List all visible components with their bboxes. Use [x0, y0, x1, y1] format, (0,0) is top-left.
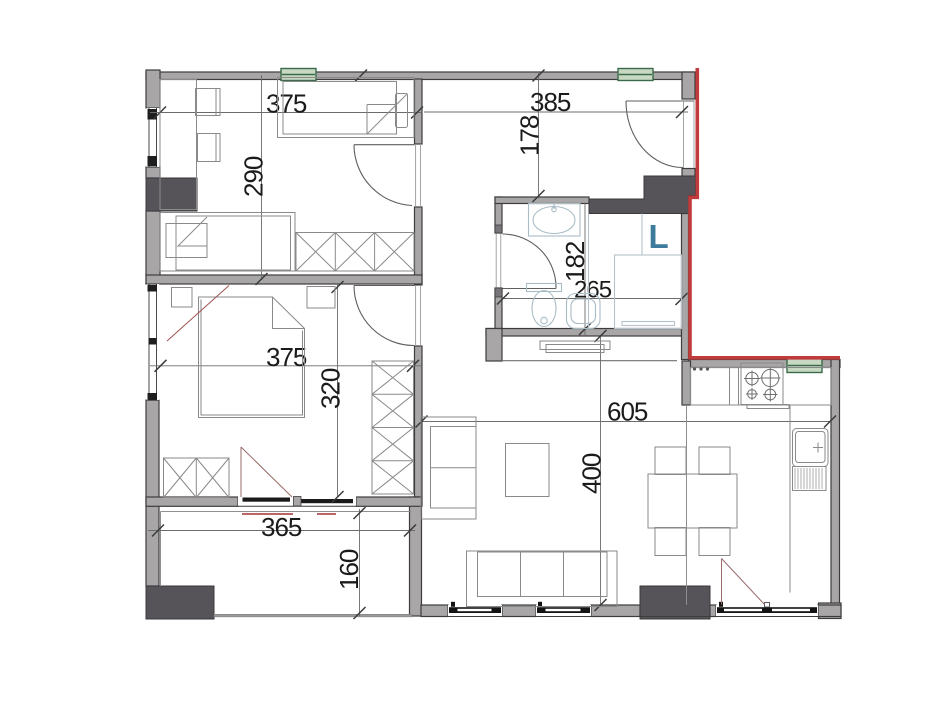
svg-text:385: 385 [530, 87, 571, 117]
svg-text:375: 375 [266, 89, 307, 119]
svg-text:400: 400 [577, 453, 607, 494]
svg-text:375: 375 [266, 342, 307, 372]
svg-text:605: 605 [607, 397, 648, 427]
svg-text:178: 178 [515, 115, 545, 156]
svg-text:160: 160 [334, 549, 364, 590]
svg-text:320: 320 [316, 368, 346, 409]
svg-text:365: 365 [261, 512, 302, 542]
svg-text:290: 290 [239, 156, 269, 197]
svg-text:L: L [649, 218, 669, 255]
